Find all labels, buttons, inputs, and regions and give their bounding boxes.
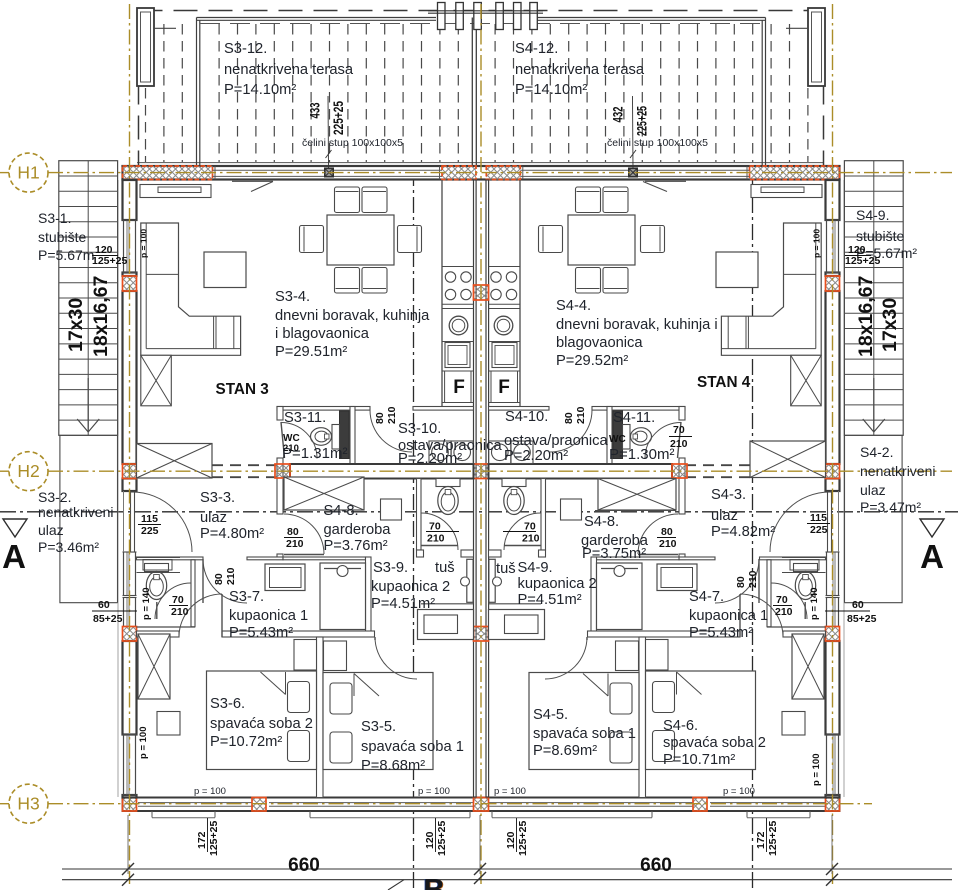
svg-text:S4-5.: S4-5. xyxy=(533,707,568,723)
svg-text:F: F xyxy=(453,377,465,398)
svg-text:dnevni boravak, kuhinja i: dnevni boravak, kuhinja i xyxy=(556,317,718,333)
svg-text:ostava/praonica: ostava/praonica xyxy=(504,433,609,449)
svg-text:STAN 4: STAN 4 xyxy=(697,374,751,391)
svg-text:S3-9.: S3-9. xyxy=(373,560,408,576)
svg-text:210: 210 xyxy=(225,567,237,585)
svg-text:225+25: 225+25 xyxy=(331,101,346,135)
svg-text:P=5.43m²: P=5.43m² xyxy=(689,625,753,641)
svg-text:p = 100: p = 100 xyxy=(723,786,755,797)
svg-text:115: 115 xyxy=(141,513,158,525)
svg-text:i blagovaonica: i blagovaonica xyxy=(275,326,370,342)
svg-text:P=3.46m²: P=3.46m² xyxy=(38,539,99,555)
svg-text:S3-12.: S3-12. xyxy=(224,41,267,57)
svg-text:P=3.76m²: P=3.76m² xyxy=(324,538,388,554)
svg-text:P=4.80m²: P=4.80m² xyxy=(200,526,264,542)
svg-text:18x16,67: 18x16,67 xyxy=(90,276,112,357)
svg-text:S4-2.: S4-2. xyxy=(860,444,893,460)
svg-text:H3: H3 xyxy=(17,794,39,814)
svg-text:nenatkrivena terasa: nenatkrivena terasa xyxy=(515,62,645,78)
svg-text:17x30: 17x30 xyxy=(65,298,87,352)
svg-text:125+25: 125+25 xyxy=(845,255,880,267)
svg-text:P=2.20m²: P=2.20m² xyxy=(398,451,462,467)
svg-text:172: 172 xyxy=(755,831,767,849)
svg-text:660: 660 xyxy=(288,855,320,876)
svg-text:P=14.10m²: P=14.10m² xyxy=(515,82,587,98)
svg-text:WC: WC xyxy=(609,434,626,445)
svg-text:p = 140: p = 140 xyxy=(809,588,820,620)
svg-text:S3-11.: S3-11. xyxy=(284,410,326,426)
svg-text:P=10.72m²: P=10.72m² xyxy=(210,734,282,750)
svg-text:85+25: 85+25 xyxy=(847,613,877,625)
svg-text:STAN 3: STAN 3 xyxy=(216,381,269,398)
svg-text:H1: H1 xyxy=(17,163,39,183)
svg-text:660: 660 xyxy=(640,855,672,876)
svg-text:120: 120 xyxy=(424,831,436,849)
svg-text:P=29.52m²: P=29.52m² xyxy=(556,353,628,369)
svg-text:P=8.68m²: P=8.68m² xyxy=(361,758,425,774)
svg-text:18x16,67: 18x16,67 xyxy=(855,276,877,357)
svg-text:P=29.51m²: P=29.51m² xyxy=(275,344,347,360)
svg-text:210: 210 xyxy=(775,606,793,618)
svg-text:80: 80 xyxy=(735,576,747,588)
svg-text:210: 210 xyxy=(286,538,304,550)
svg-text:P=8.69m²: P=8.69m² xyxy=(533,743,597,759)
svg-text:80: 80 xyxy=(287,526,299,538)
svg-text:nenatkriveni: nenatkriveni xyxy=(860,463,936,479)
svg-text:125+25: 125+25 xyxy=(436,821,448,856)
svg-text:dnevni boravak, kuhinja: dnevni boravak, kuhinja xyxy=(275,308,430,324)
svg-text:433: 433 xyxy=(308,102,323,118)
svg-text:H2: H2 xyxy=(17,461,39,481)
svg-text:S4-7.: S4-7. xyxy=(689,589,724,605)
svg-text:p = 100: p = 100 xyxy=(494,786,526,797)
svg-text:P=3.75m²: P=3.75m² xyxy=(582,546,646,562)
svg-text:čelini stup 100x100x5: čelini stup 100x100x5 xyxy=(302,137,403,149)
svg-text:spavaća soba 1: spavaća soba 1 xyxy=(533,726,636,742)
svg-text:172: 172 xyxy=(196,831,208,849)
svg-text:blagovaonica: blagovaonica xyxy=(556,335,643,351)
svg-text:A: A xyxy=(920,538,944,575)
svg-text:210: 210 xyxy=(522,533,540,545)
svg-text:17x30: 17x30 xyxy=(879,298,901,352)
svg-text:210: 210 xyxy=(747,570,759,588)
svg-text:210: 210 xyxy=(171,606,189,618)
svg-text:S4-4.: S4-4. xyxy=(556,298,591,314)
svg-text:stubište: stubište xyxy=(856,228,904,244)
svg-text:tuš: tuš xyxy=(435,560,455,576)
svg-text:210: 210 xyxy=(386,406,398,424)
svg-text:p = 100: p = 100 xyxy=(812,229,822,258)
svg-text:p = 100: p = 100 xyxy=(811,754,822,786)
svg-text:kupaonica 2: kupaonica 2 xyxy=(371,579,450,595)
svg-text:60: 60 xyxy=(852,599,864,611)
svg-text:F: F xyxy=(498,377,510,398)
svg-text:210: 210 xyxy=(427,533,445,545)
svg-text:S3-7.: S3-7. xyxy=(229,589,264,605)
svg-text:P=5.67m: P=5.67m xyxy=(38,247,94,263)
svg-text:225+25: 225+25 xyxy=(635,106,650,136)
svg-text:tuš: tuš xyxy=(496,561,516,577)
svg-text:S4-9.: S4-9. xyxy=(518,560,553,576)
svg-text:P=1.31m²: P=1.31m² xyxy=(282,445,347,462)
svg-text:S3-1.: S3-1. xyxy=(38,210,71,226)
svg-text:80: 80 xyxy=(563,412,575,424)
svg-text:P=1.30m²: P=1.30m² xyxy=(609,446,674,463)
svg-text:S4-12.: S4-12. xyxy=(515,41,558,57)
svg-text:70: 70 xyxy=(172,594,184,606)
svg-text:60: 60 xyxy=(98,599,110,611)
svg-text:p = 140: p = 140 xyxy=(141,588,152,620)
svg-text:210: 210 xyxy=(659,538,677,550)
svg-text:115: 115 xyxy=(810,512,827,524)
svg-text:p = 100: p = 100 xyxy=(194,786,226,797)
svg-text:S4-8.: S4-8. xyxy=(584,514,619,530)
svg-text:ulaz: ulaz xyxy=(38,522,64,538)
svg-text:125+25: 125+25 xyxy=(517,821,529,856)
svg-text:S3-2.: S3-2. xyxy=(38,489,71,505)
svg-text:S4-11.: S4-11. xyxy=(613,410,655,426)
svg-text:kupaonica 1: kupaonica 1 xyxy=(229,608,308,624)
svg-text:P=4.82m²: P=4.82m² xyxy=(711,524,775,540)
svg-text:spavaća soba 2: spavaća soba 2 xyxy=(210,716,313,732)
svg-text:S3-10.: S3-10. xyxy=(398,421,441,437)
svg-text:p = 100: p = 100 xyxy=(418,786,450,797)
svg-text:ulaz: ulaz xyxy=(711,508,738,524)
svg-text:S3-4.: S3-4. xyxy=(275,289,310,305)
svg-text:S3-3.: S3-3. xyxy=(200,490,235,506)
svg-text:P=4.51m²: P=4.51m² xyxy=(371,596,435,612)
svg-text:S3-5.: S3-5. xyxy=(361,719,396,735)
svg-text:210: 210 xyxy=(670,438,688,450)
svg-text:nenatkrivena terasa: nenatkrivena terasa xyxy=(224,62,354,78)
svg-text:432: 432 xyxy=(611,107,626,123)
svg-text:P=3.47m²: P=3.47m² xyxy=(860,499,921,515)
svg-text:P=10.71m²: P=10.71m² xyxy=(663,752,735,768)
svg-text:85+25: 85+25 xyxy=(93,613,123,625)
svg-text:p = 100: p = 100 xyxy=(138,727,149,759)
svg-text:nenatkriveni: nenatkriveni xyxy=(38,504,114,520)
svg-text:spavaća soba 2: spavaća soba 2 xyxy=(663,735,766,751)
svg-text:B: B xyxy=(423,874,445,890)
svg-text:p = 100: p = 100 xyxy=(139,229,149,258)
svg-text:70: 70 xyxy=(429,521,441,533)
svg-text:A: A xyxy=(2,538,26,575)
svg-text:ulaz: ulaz xyxy=(200,510,227,526)
svg-text:120: 120 xyxy=(505,831,517,849)
svg-text:125+25: 125+25 xyxy=(767,821,779,856)
svg-text:210: 210 xyxy=(575,406,587,424)
svg-text:70: 70 xyxy=(524,521,536,533)
svg-text:ulaz: ulaz xyxy=(860,482,886,498)
svg-text:70: 70 xyxy=(673,424,685,436)
svg-text:S3-6.: S3-6. xyxy=(210,696,245,712)
svg-text:S4-10.: S4-10. xyxy=(505,409,548,425)
svg-text:125+25: 125+25 xyxy=(208,821,220,856)
svg-text:kupaonica 2: kupaonica 2 xyxy=(518,576,597,592)
svg-text:stubište: stubište xyxy=(38,229,86,245)
svg-text:70: 70 xyxy=(776,594,788,606)
svg-text:225: 225 xyxy=(141,525,159,537)
svg-text:80: 80 xyxy=(213,573,225,585)
svg-text:125+25: 125+25 xyxy=(92,255,127,267)
svg-text:S4-9.: S4-9. xyxy=(856,207,889,223)
svg-text:80: 80 xyxy=(374,412,386,424)
svg-text:S4-6.: S4-6. xyxy=(663,718,698,734)
svg-text:S4-8.: S4-8. xyxy=(324,503,359,519)
svg-text:80: 80 xyxy=(661,526,673,538)
svg-text:P=5.43m²: P=5.43m² xyxy=(229,625,293,641)
svg-text:S4-3.: S4-3. xyxy=(711,487,746,503)
svg-text:P=2.20m²: P=2.20m² xyxy=(504,448,568,464)
svg-text:kupaonica 1: kupaonica 1 xyxy=(689,608,768,624)
svg-text:garderoba: garderoba xyxy=(324,522,392,538)
svg-text:P=14.10m²: P=14.10m² xyxy=(224,82,296,98)
svg-text:P=4.51m²: P=4.51m² xyxy=(518,592,582,608)
svg-text:225: 225 xyxy=(810,524,828,536)
svg-text:spavaća soba 1: spavaća soba 1 xyxy=(361,739,464,755)
svg-text:čelini stup 100x100x5: čelini stup 100x100x5 xyxy=(607,137,708,149)
